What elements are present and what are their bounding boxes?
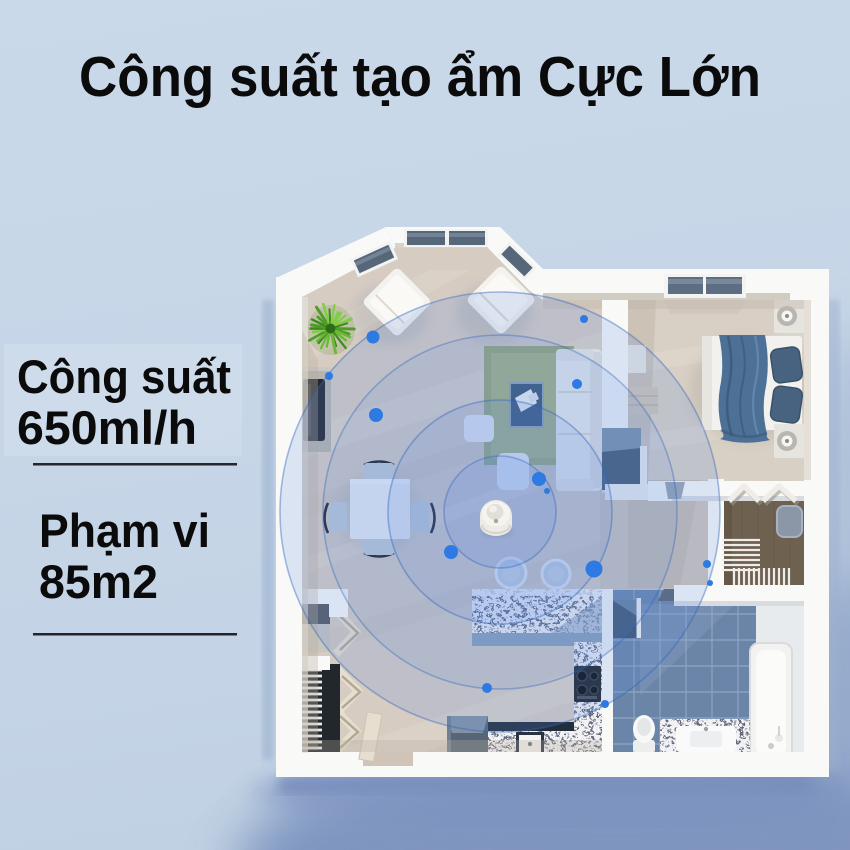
svg-text:Công suất: Công suất (17, 350, 231, 403)
svg-text:650ml/h: 650ml/h (17, 401, 197, 454)
svg-text:85m2: 85m2 (39, 555, 158, 608)
svg-text:Phạm vi: Phạm vi (39, 504, 210, 557)
svg-text:Công suất tạo ẩm Cực Lớn: Công suất tạo ẩm Cực Lớn (79, 45, 761, 109)
